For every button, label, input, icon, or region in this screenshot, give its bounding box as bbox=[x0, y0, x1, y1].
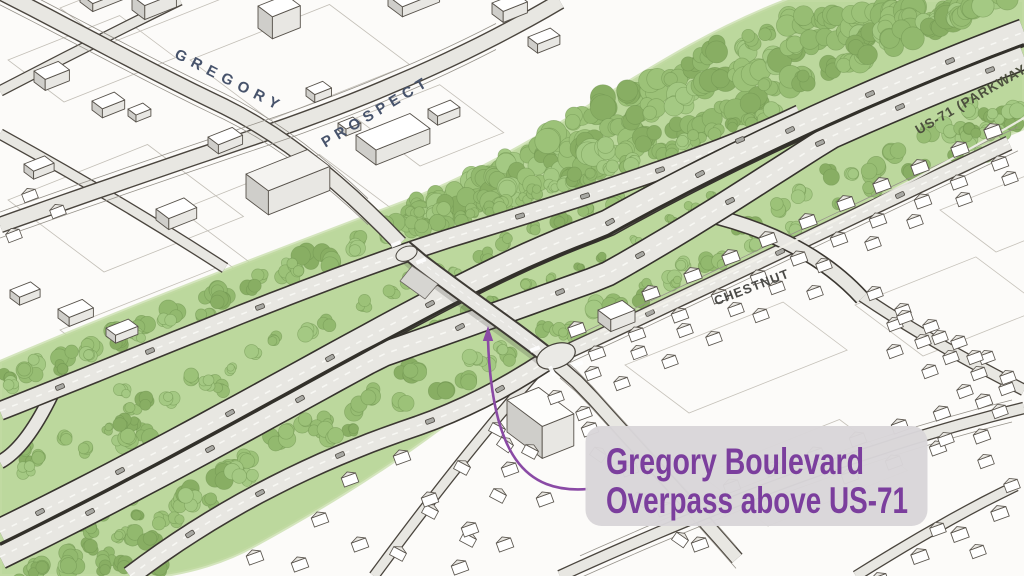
svg-text:Overpass above US-71: Overpass above US-71 bbox=[606, 480, 908, 521]
svg-text:Gregory Boulevard: Gregory Boulevard bbox=[606, 441, 864, 482]
